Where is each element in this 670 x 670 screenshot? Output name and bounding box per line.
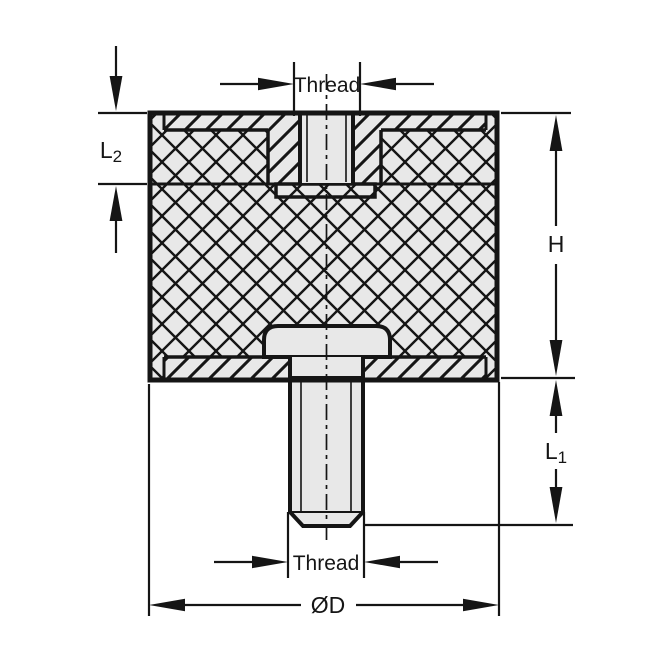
- dim-l2: L2: [98, 46, 147, 253]
- rubber-mount-diagram: Thread L2 H L1 Thread ØD: [0, 0, 670, 670]
- dim-h: H: [501, 113, 575, 378]
- dim-l1: L1: [364, 380, 573, 525]
- label-l1: L1: [545, 438, 567, 467]
- label-l2: L2: [100, 137, 122, 166]
- label-diameter: ØD: [311, 592, 346, 618]
- label-thread-bottom: Thread: [293, 552, 360, 575]
- technical-drawing-canvas: Thread L2 H L1 Thread ØD: [0, 0, 670, 670]
- label-h: H: [548, 231, 565, 257]
- label-thread-top: Thread: [294, 74, 361, 97]
